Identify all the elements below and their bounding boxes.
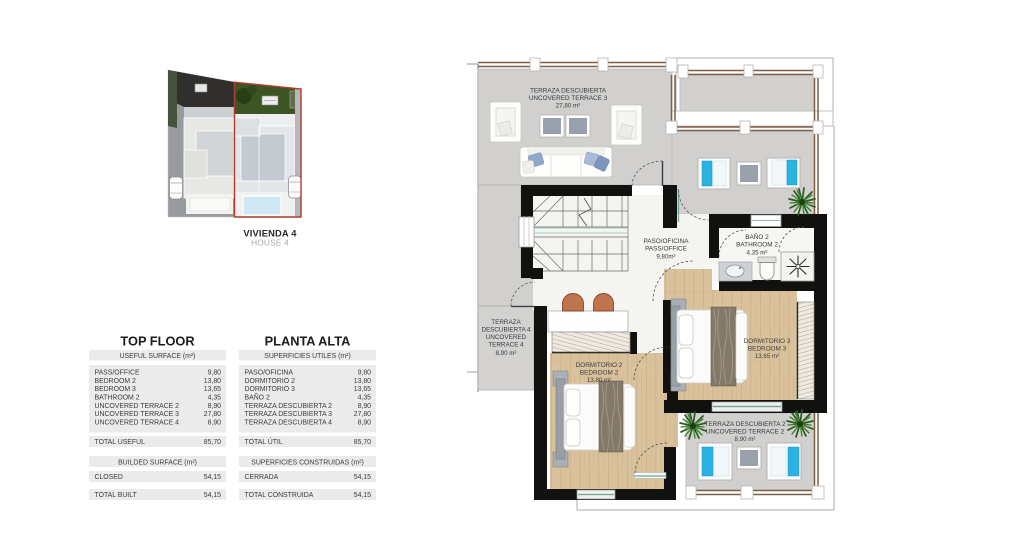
- svg-text:TOP FLOOR: TOP FLOOR: [120, 334, 194, 349]
- svg-text:UNCOVERED TERRACE 3: UNCOVERED TERRACE 3: [529, 95, 608, 102]
- svg-text:DESCUBIERTA 4: DESCUBIERTA 4: [481, 327, 531, 334]
- svg-text:BEDROOM 3: BEDROOM 3: [95, 386, 137, 393]
- svg-text:TOTAL USEFUL: TOTAL USEFUL: [95, 439, 146, 446]
- svg-text:8,90 m²: 8,90 m²: [735, 436, 756, 443]
- svg-text:UNCOVERED TERRACE 4: UNCOVERED TERRACE 4: [95, 419, 180, 426]
- svg-text:27,80: 27,80: [354, 411, 371, 418]
- svg-text:4,35: 4,35: [208, 395, 222, 402]
- svg-text:DORMITORIO 3: DORMITORIO 3: [744, 338, 791, 345]
- svg-text:BEDROOM 2: BEDROOM 2: [580, 370, 619, 377]
- svg-text:PASS/OFFICE: PASS/OFFICE: [95, 370, 140, 377]
- svg-text:TERRACE 4: TERRACE 4: [488, 342, 524, 349]
- svg-text:TERRAZA DESCUBIERTA 2: TERRAZA DESCUBIERTA 2: [245, 403, 333, 410]
- svg-text:TERRAZA DESCUBIERTA 2: TERRAZA DESCUBIERTA 2: [704, 421, 786, 428]
- svg-text:8,90 m²: 8,90 m²: [496, 350, 517, 357]
- svg-text:SUPERFICIES UTILES (m²): SUPERFICIES UTILES (m²): [264, 353, 351, 360]
- svg-text:TERRAZA DESCUBIERTA 4: TERRAZA DESCUBIERTA 4: [245, 419, 333, 426]
- svg-text:SUPERFICIES CONSTRUIDAS (m²): SUPERFICIES CONSTRUIDAS (m²): [251, 459, 364, 466]
- svg-text:8,90: 8,90: [358, 419, 372, 426]
- svg-text:CLOSED: CLOSED: [95, 474, 123, 481]
- svg-text:BATHROOM 2: BATHROOM 2: [95, 395, 140, 402]
- svg-text:UNCOVERED: UNCOVERED: [486, 334, 527, 341]
- svg-text:8,90: 8,90: [208, 403, 222, 410]
- svg-text:BEDROOM 3: BEDROOM 3: [748, 346, 787, 353]
- svg-text:BUILDED SURFACE (m²): BUILDED SURFACE (m²): [118, 459, 197, 466]
- svg-text:CERRADA: CERRADA: [245, 474, 279, 481]
- svg-text:85,70: 85,70: [354, 439, 371, 446]
- svg-text:9,80m²: 9,80m²: [656, 254, 675, 261]
- svg-text:4,35 m²: 4,35 m²: [747, 250, 768, 257]
- svg-text:UNCOVERED TERRACE 2: UNCOVERED TERRACE 2: [95, 403, 180, 410]
- svg-text:TOTAL CONSTRUIDA: TOTAL CONSTRUIDA: [245, 492, 314, 499]
- svg-text:8,90: 8,90: [358, 403, 372, 410]
- svg-text:USEFUL SURFACE (m²): USEFUL SURFACE (m²): [120, 353, 196, 360]
- svg-text:PLANTA ALTA: PLANTA ALTA: [265, 334, 351, 349]
- svg-text:PASO/OFICINA: PASO/OFICINA: [644, 238, 690, 245]
- svg-text:13,80: 13,80: [354, 378, 371, 385]
- svg-text:27,80: 27,80: [204, 411, 221, 418]
- svg-text:27,80 m²: 27,80 m²: [556, 103, 580, 110]
- svg-text:TERRAZA: TERRAZA: [491, 319, 521, 326]
- svg-text:DORMITORIO 2: DORMITORIO 2: [576, 362, 623, 369]
- svg-text:13,65 m²: 13,65 m²: [755, 353, 779, 360]
- svg-text:54,15: 54,15: [354, 474, 371, 481]
- svg-text:BATHROOM 2: BATHROOM 2: [736, 242, 778, 249]
- svg-text:TOTAL ÚTIL: TOTAL ÚTIL: [245, 437, 283, 446]
- svg-text:TERRAZA DESCUBIERTA 3: TERRAZA DESCUBIERTA 3: [245, 411, 333, 418]
- svg-text:BEDROOM 2: BEDROOM 2: [95, 378, 137, 385]
- svg-text:HOUSE 4: HOUSE 4: [251, 238, 289, 248]
- svg-text:8,90: 8,90: [208, 419, 222, 426]
- svg-text:DORMITORIO 3: DORMITORIO 3: [245, 386, 296, 393]
- svg-text:54,15: 54,15: [204, 492, 221, 499]
- svg-text:54,15: 54,15: [204, 474, 221, 481]
- svg-text:54,15: 54,15: [354, 492, 371, 499]
- svg-text:13,80 m²: 13,80 m²: [587, 377, 611, 384]
- svg-text:TERRAZA DESCUBIERTA: TERRAZA DESCUBIERTA: [530, 88, 607, 95]
- svg-text:UNCOVERED TERRACE 3: UNCOVERED TERRACE 3: [95, 411, 180, 418]
- svg-text:85,70: 85,70: [204, 439, 221, 446]
- svg-text:9,80: 9,80: [358, 370, 372, 377]
- svg-text:BAÑO 2: BAÑO 2: [245, 393, 270, 402]
- svg-text:DORMITORIO 2: DORMITORIO 2: [245, 378, 296, 385]
- svg-text:BAÑO 2: BAÑO 2: [745, 232, 769, 241]
- svg-text:UNCOVERED TERRACE 2: UNCOVERED TERRACE 2: [706, 429, 785, 436]
- svg-text:13,65: 13,65: [354, 386, 371, 393]
- svg-text:13,65: 13,65: [204, 386, 221, 393]
- svg-text:4,35: 4,35: [358, 395, 372, 402]
- svg-text:PASO/OFICINA: PASO/OFICINA: [245, 370, 294, 377]
- svg-text:13,80: 13,80: [204, 378, 221, 385]
- svg-text:PASS/OFFICE: PASS/OFFICE: [645, 246, 687, 253]
- svg-text:TOTAL BUILT: TOTAL BUILT: [95, 492, 138, 499]
- svg-text:9,80: 9,80: [208, 370, 222, 377]
